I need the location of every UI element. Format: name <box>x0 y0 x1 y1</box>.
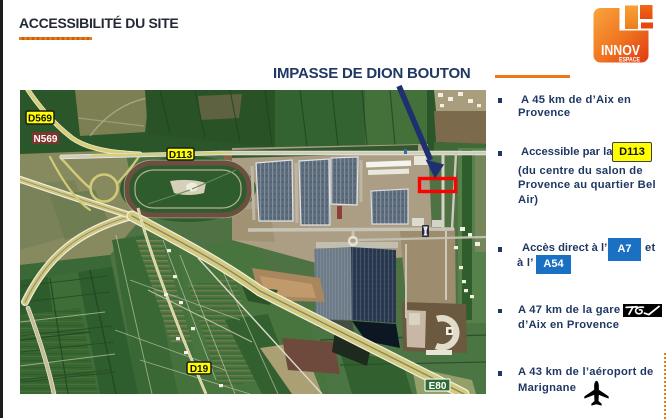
svg-text:ESPACE: ESPACE <box>619 57 641 64</box>
